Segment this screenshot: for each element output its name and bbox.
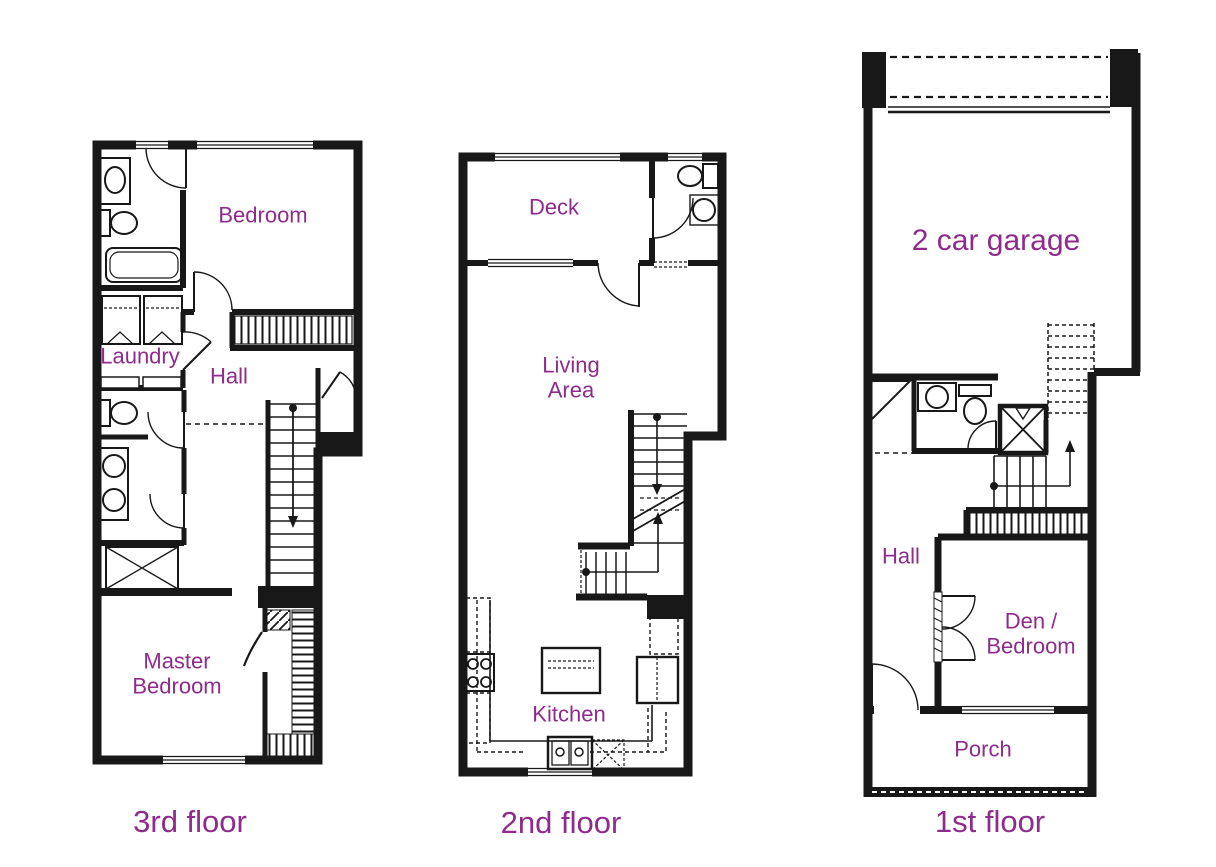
wall-block <box>258 586 322 608</box>
bedroom-door-icon <box>194 272 232 312</box>
room-label-hall-3rd: Hall <box>210 365 248 390</box>
wall-block <box>316 432 360 453</box>
deck-door-icon <box>598 263 639 307</box>
room-label-living-area: Living Area <box>526 353 616 402</box>
refrigerator-icon <box>637 657 678 703</box>
floor-plan-3rd-floor <box>85 135 377 803</box>
toilet-icon <box>959 385 991 424</box>
floor-plan-1st-floor <box>848 45 1150 807</box>
sink-vanity-icon <box>100 158 130 204</box>
kitchen-island-icon <box>542 648 600 693</box>
bathroom-door-icon <box>148 412 184 528</box>
second-toilet-icon <box>100 400 137 426</box>
room-label-master-bedroom: Master Bedroom <box>125 649 229 698</box>
landing-rail-icon <box>576 546 658 597</box>
landing-door-icon <box>322 372 356 398</box>
counters-dashed <box>466 598 678 752</box>
laundry-door-icon <box>183 332 211 370</box>
stairs-down-icon <box>268 404 318 573</box>
dryer-icon <box>144 296 182 344</box>
floor-plan-2nd-floor <box>440 145 740 790</box>
room-label-garage: 2 car garage <box>912 224 1080 258</box>
stairs-up-icon <box>990 323 1094 508</box>
sink-vanity-icon <box>918 383 956 411</box>
caption-1st-floor: 1st floor <box>935 804 1045 840</box>
walk-in-closet-icon <box>267 610 316 756</box>
room-label-deck: Deck <box>529 196 579 221</box>
window-icon <box>962 705 1054 716</box>
toilet-icon <box>100 210 137 236</box>
room-label-den-bedroom: Den / Bedroom <box>975 609 1087 658</box>
room-label-kitchen: Kitchen <box>532 703 605 728</box>
coat-closet-icon <box>868 381 910 423</box>
hall-closet-icon <box>968 513 1092 534</box>
toilet-icon <box>678 164 718 188</box>
wall-block <box>647 595 687 619</box>
french-doors-icon <box>934 592 975 662</box>
shower-icon <box>1000 406 1046 453</box>
double-sink-vanity-icon <box>100 448 128 520</box>
bathroom-door-icon <box>968 421 996 449</box>
bathroom-door-icon <box>653 198 693 238</box>
bathtub-icon <box>106 248 182 282</box>
caption-2nd-floor: 2nd floor <box>501 805 622 841</box>
room-label-hall-1st: Hall <box>882 545 920 570</box>
master-door-icon <box>244 632 262 666</box>
room-label-porch: Porch <box>954 738 1011 763</box>
bath-opening-dashed <box>654 262 688 267</box>
room-label-laundry: Laundry <box>100 345 180 370</box>
dishwasher-icon <box>592 740 624 770</box>
stairs-up-down-icon <box>633 413 687 572</box>
round-sink-icon <box>690 195 720 225</box>
door-icon <box>146 148 186 188</box>
washer-icon <box>102 296 140 344</box>
linen-closet-icon <box>106 547 178 589</box>
garage-door-icon <box>862 49 1138 112</box>
outer-walls <box>463 157 722 772</box>
floor-plan-image: Bedroom Laundry Hall Master Bedroom Deck… <box>0 0 1216 867</box>
bedroom-closet-icon <box>234 316 352 344</box>
caption-3rd-floor: 3rd floor <box>133 804 247 840</box>
window-icon <box>488 152 702 778</box>
entry-door-icon <box>872 664 918 710</box>
room-label-bedroom: Bedroom <box>218 204 307 229</box>
